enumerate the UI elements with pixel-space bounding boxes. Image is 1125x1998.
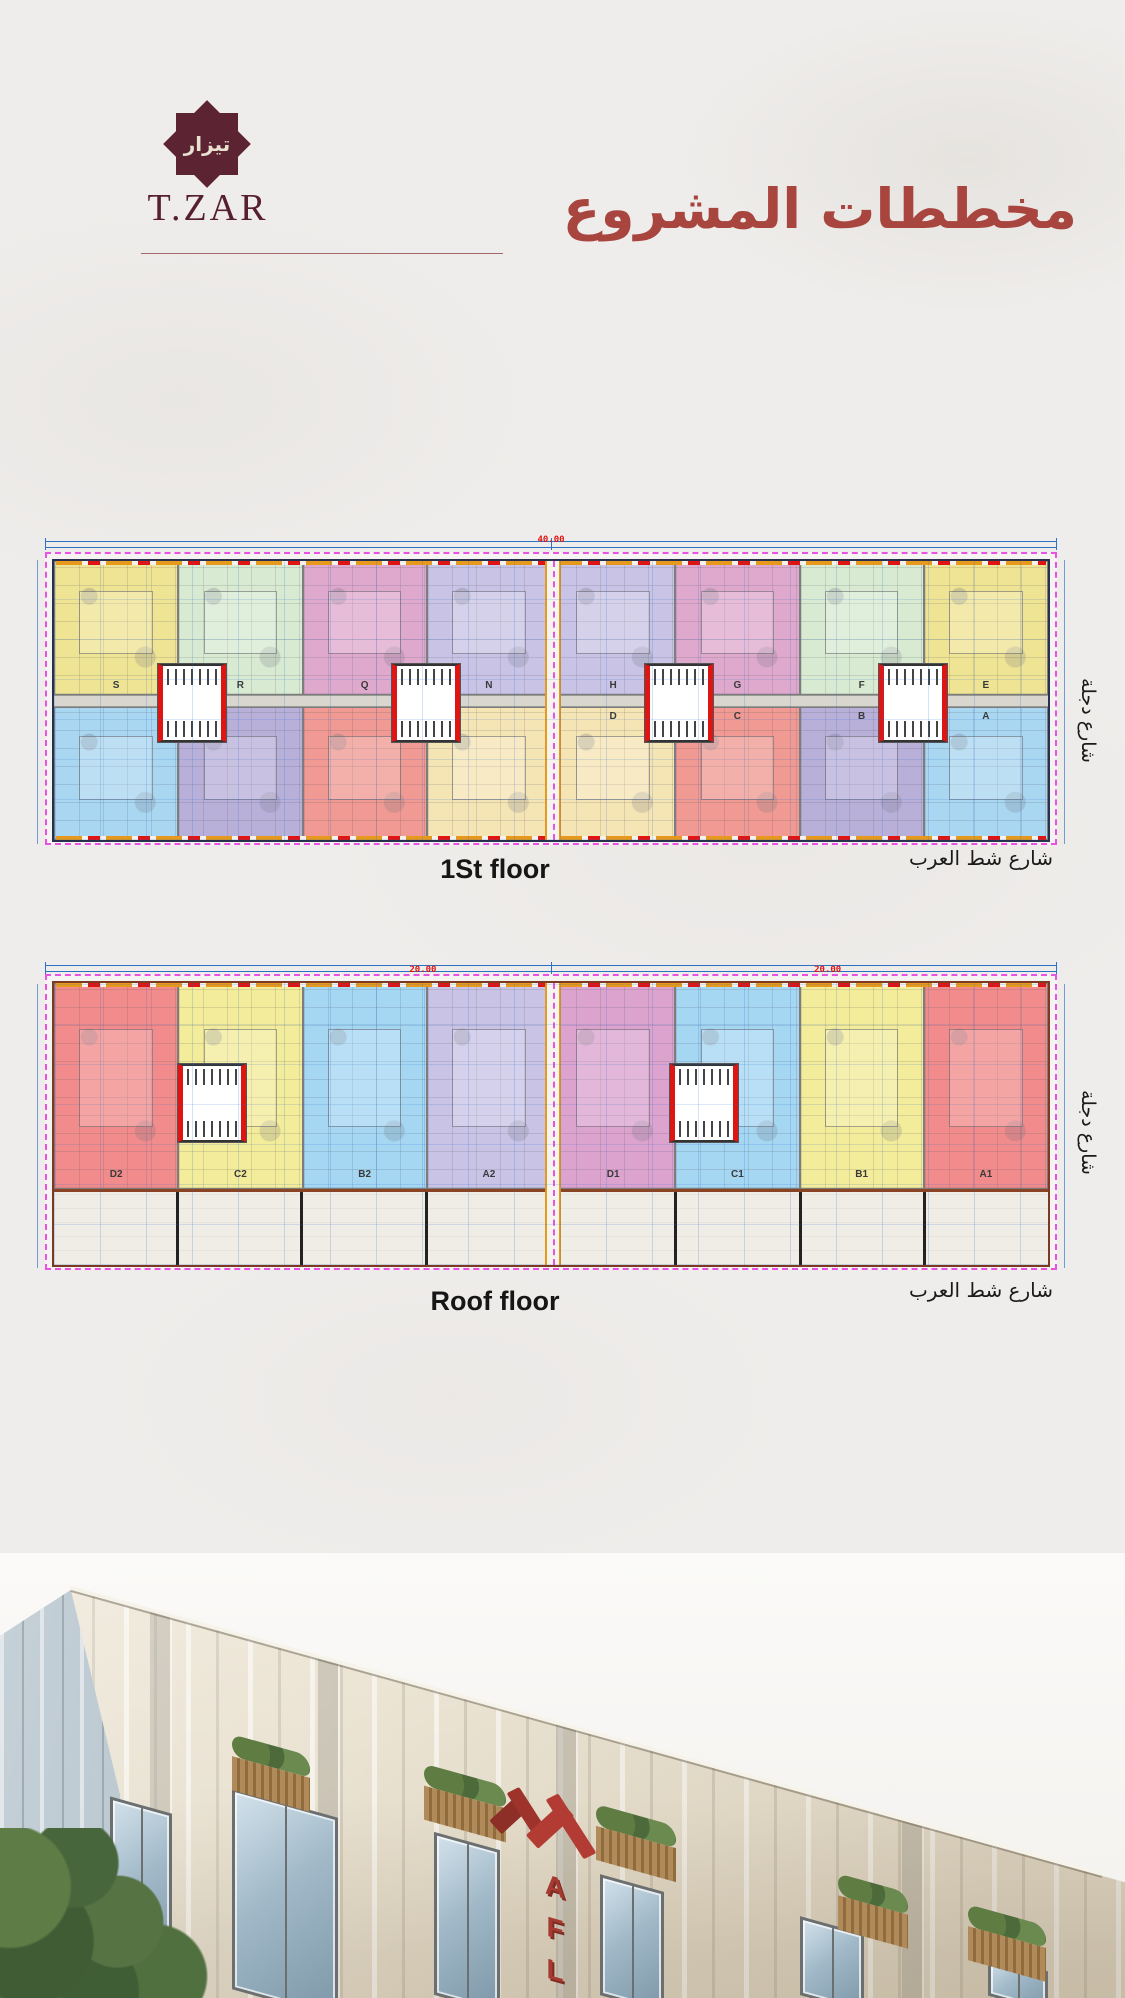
sign-letter: F bbox=[538, 1908, 572, 1949]
sign-letter: A bbox=[538, 1992, 572, 1998]
unit-label: B2 bbox=[358, 1169, 371, 1180]
dimension-line bbox=[1064, 984, 1065, 1268]
unit-label: B1 bbox=[855, 1169, 868, 1180]
terrace-cell bbox=[303, 1192, 428, 1265]
unit-label: A2 bbox=[482, 1169, 495, 1180]
brand-name-latin: T.ZAR bbox=[118, 186, 298, 230]
unit-label: E bbox=[983, 680, 990, 691]
terrace-cell bbox=[677, 1192, 802, 1265]
unit-cell: D1 bbox=[551, 983, 675, 1189]
unit-label: C bbox=[734, 711, 741, 722]
unit-label: F bbox=[859, 680, 865, 691]
plan-roof-floor: 20.00 20.00 D2 C2 bbox=[45, 962, 1057, 1314]
unit-label: R bbox=[237, 680, 244, 691]
unit-label: C1 bbox=[731, 1169, 744, 1180]
page: تيزار T.ZAR مخططات المشروع 40.00 S bbox=[0, 0, 1125, 1998]
stair-core bbox=[645, 664, 713, 742]
page-title: مخططات المشروع bbox=[563, 178, 1077, 241]
unit-cell: B2 bbox=[303, 983, 427, 1189]
terrace-cell bbox=[54, 1192, 179, 1265]
window bbox=[232, 1788, 338, 1998]
terrace-cell bbox=[802, 1192, 927, 1265]
window bbox=[434, 1832, 500, 1998]
stair-core bbox=[392, 664, 460, 742]
dimension-line bbox=[45, 962, 1057, 976]
unit-label: C2 bbox=[234, 1169, 247, 1180]
center-divider bbox=[545, 983, 561, 1265]
unit-label: B bbox=[858, 711, 865, 722]
plan-first-floor: 40.00 S R bbox=[45, 538, 1057, 890]
unit-label: Q bbox=[361, 680, 369, 691]
center-divider bbox=[545, 561, 561, 840]
plan-frame: S R Q N bbox=[45, 552, 1057, 845]
unit-label: D1 bbox=[607, 1169, 620, 1180]
building-outline: D2 C2 B2 A2 bbox=[52, 981, 1050, 1267]
afla-sign-letters: A F L A bbox=[538, 1866, 572, 1998]
street-label-side: شارع دجلة bbox=[1077, 678, 1099, 853]
dimension-label: 20.00 bbox=[409, 965, 436, 975]
unit-label: D bbox=[610, 711, 617, 722]
unit-label: H bbox=[610, 680, 617, 691]
building-outline: S R Q N bbox=[52, 559, 1050, 842]
tree bbox=[0, 1828, 220, 1998]
unit-cell: A2 bbox=[427, 983, 551, 1189]
dimension-line bbox=[37, 984, 38, 1268]
stair-core bbox=[178, 1064, 246, 1142]
unit-label: G bbox=[733, 680, 741, 691]
sign-letter: L bbox=[538, 1950, 572, 1991]
dimension-label: 40.00 bbox=[537, 535, 564, 545]
unit-label: N bbox=[485, 680, 492, 691]
unit-cell: D2 bbox=[54, 983, 178, 1189]
brand-underline bbox=[141, 253, 503, 254]
brand-logo: تيزار bbox=[163, 100, 251, 188]
floor-label: Roof floor bbox=[45, 1286, 945, 1317]
stair-core bbox=[670, 1064, 738, 1142]
unit-label: S bbox=[113, 680, 120, 691]
terrace-cell bbox=[179, 1192, 304, 1265]
dimension-line: 40.00 bbox=[45, 538, 1057, 552]
dimension-line bbox=[1064, 560, 1065, 844]
terrace-cell bbox=[926, 1192, 1048, 1265]
dimension-label: 20.00 bbox=[814, 965, 841, 975]
building-photo: A F L A bbox=[0, 1553, 1125, 1998]
stair-core bbox=[158, 664, 226, 742]
terrace-cell bbox=[553, 1192, 678, 1265]
unit-label: A bbox=[982, 711, 989, 722]
plan-frame: D2 C2 B2 A2 bbox=[45, 974, 1057, 1270]
unit-label: A1 bbox=[979, 1169, 992, 1180]
street-label-side: شارع دجلة bbox=[1077, 1090, 1099, 1275]
floor-label: 1St floor bbox=[45, 854, 945, 885]
unit-label: D2 bbox=[110, 1169, 123, 1180]
window bbox=[600, 1874, 664, 1998]
unit-cell: A1 bbox=[924, 983, 1048, 1189]
terrace-cell bbox=[428, 1192, 553, 1265]
brand-name-arabic: تيزار bbox=[163, 100, 251, 188]
stair-core bbox=[879, 664, 947, 742]
unit-cell: B1 bbox=[800, 983, 924, 1189]
dimension-line bbox=[37, 560, 38, 844]
